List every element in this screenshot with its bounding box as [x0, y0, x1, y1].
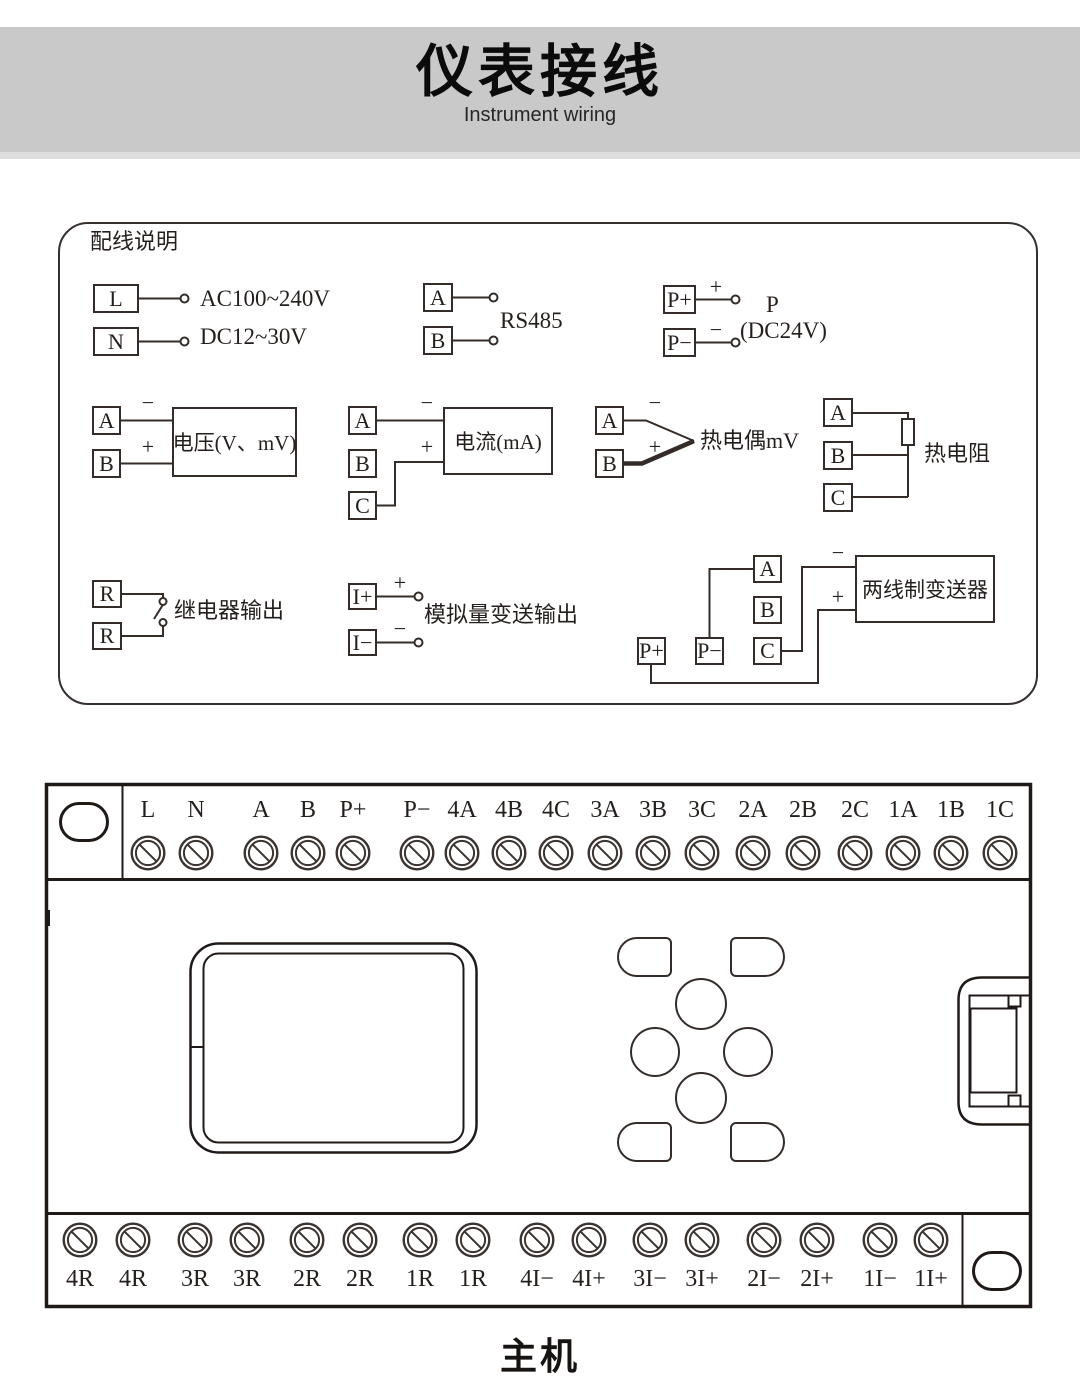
screw-terminal-2I+ [801, 1224, 834, 1257]
terminal-label-L: L [141, 797, 156, 824]
terminal-label-P+: P+ [340, 797, 367, 824]
device-button-down [675, 1072, 727, 1124]
screw-terminal-1C [984, 837, 1017, 870]
screw-terminal-2C [839, 837, 872, 870]
screw-terminal-2I− [748, 1224, 781, 1257]
terminal-label-2C: 2C [841, 797, 869, 824]
terminal-box-B-thermocouple: B [595, 449, 624, 478]
terminal-box-B-current: B [348, 449, 377, 478]
terminal-label-4C: 4C [542, 797, 570, 824]
screw-terminal-4R [64, 1224, 97, 1257]
terminal-box-C-current: C [348, 491, 377, 520]
terminal-box-P-plus-transmitter: P+ [637, 637, 666, 665]
screw-terminal-P− [401, 837, 434, 870]
rs485-label: RS485 [500, 308, 563, 333]
screw-terminal-3B [637, 837, 670, 870]
plus-sign: + [421, 436, 433, 458]
device-button-top-left [617, 937, 672, 977]
terminal-label-3R: 3R [233, 1266, 261, 1293]
terminal-box-R2: R [92, 622, 122, 650]
screw-terminal-N [180, 837, 213, 870]
terminal-label-4R: 4R [66, 1266, 94, 1293]
screw-terminal-2R [344, 1224, 377, 1257]
screw-terminal-1R [457, 1224, 490, 1257]
current-input-box: 电流(mA) [443, 407, 553, 475]
screw-terminal-B [292, 837, 325, 870]
screw-terminal-1B [935, 837, 968, 870]
screw-terminal-1I− [864, 1224, 897, 1257]
minus-sign: − [649, 392, 661, 414]
screw-terminal-3I+ [686, 1224, 719, 1257]
terminal-box-B-voltage: B [92, 449, 121, 478]
terminal-label-1A: 1A [888, 797, 917, 824]
terminal-box-I-minus: I− [348, 629, 377, 656]
terminal-box-L: L [93, 284, 139, 313]
case-notch [45, 910, 50, 926]
relay-label: 继电器输出 [174, 599, 284, 623]
screw-terminal-4I− [521, 1224, 554, 1257]
thermocouple-label: 热电偶mV [700, 429, 799, 453]
screw-terminal-3C [686, 837, 719, 870]
main-unit-caption: 主机 [0, 1326, 1080, 1380]
display-window [190, 944, 477, 1153]
transmitter-box: 两线制变送器 [855, 555, 995, 623]
power-supply-line2: DC12~30V [200, 324, 307, 349]
page: 仪表接线 Instrument wiring [0, 0, 1080, 1395]
terminal-label-4A: 4A [447, 797, 476, 824]
terminal-label-3I−: 3I− [633, 1266, 667, 1293]
minus-sign: − [394, 618, 406, 640]
screw-terminal-2R [291, 1224, 324, 1257]
terminal-label-1I+: 1I+ [914, 1266, 948, 1293]
terminal-box-B-rs485: B [423, 326, 453, 355]
terminal-label-4I+: 4I+ [572, 1266, 606, 1293]
terminal-box-A-rs485: A [423, 283, 453, 312]
terminal-box-P-plus: P+ [663, 285, 696, 314]
screw-terminal-1A [887, 837, 920, 870]
terminal-box-A-rtd: A [823, 398, 853, 427]
screw-terminal-A [245, 837, 278, 870]
plus-sign: + [142, 436, 154, 458]
terminal-label-1B: 1B [937, 797, 965, 824]
wiring-panel-title: 配线说明 [90, 230, 178, 254]
terminal-label-1C: 1C [986, 797, 1014, 824]
screw-terminals [64, 837, 1017, 1257]
device-button-right [723, 1027, 773, 1077]
terminal-label-2A: 2A [738, 797, 767, 824]
plus-sign: + [394, 572, 406, 594]
screw-terminal-3I− [634, 1224, 667, 1257]
screw-terminal-3R [179, 1224, 212, 1257]
terminal-label-3R: 3R [181, 1266, 209, 1293]
terminal-label-2I−: 2I− [747, 1266, 781, 1293]
screw-terminal-2B [787, 837, 820, 870]
terminal-label-A: A [252, 797, 269, 824]
terminal-label-1R: 1R [406, 1266, 434, 1293]
terminal-label-4B: 4B [495, 797, 523, 824]
terminal-label-B: B [300, 797, 316, 824]
power-supply-line1: AC100~240V [200, 286, 330, 311]
screw-terminal-3R [231, 1224, 264, 1257]
terminal-label-2R: 2R [293, 1266, 321, 1293]
device-button-left [630, 1027, 680, 1077]
terminal-label-3B: 3B [639, 797, 667, 824]
device-button-bottom-right [730, 1122, 785, 1162]
screw-terminal-L [132, 837, 165, 870]
terminal-label-N: N [187, 797, 204, 824]
side-connector [959, 978, 1032, 1125]
terminal-box-A-voltage: A [92, 406, 121, 435]
device-button-bottom-left [617, 1122, 672, 1162]
device-button-up [675, 978, 727, 1030]
terminal-box-C-rtd: C [823, 483, 853, 512]
terminal-box-P-minus: P− [663, 328, 696, 357]
terminal-label-4I−: 4I− [520, 1266, 554, 1293]
plus-sign: + [832, 586, 844, 608]
power-24v-label1: P [766, 292, 779, 317]
screw-terminal-3A [589, 837, 622, 870]
plus-sign: + [649, 436, 661, 458]
terminal-box-C-transmitter: C [753, 637, 782, 665]
plus-sign: + [710, 276, 722, 298]
minus-sign: − [421, 392, 433, 414]
terminal-label-2I+: 2I+ [800, 1266, 834, 1293]
terminal-box-I-plus: I+ [348, 583, 377, 610]
terminal-label-3C: 3C [688, 797, 716, 824]
screw-terminal-4R [117, 1224, 150, 1257]
terminal-box-A-transmitter: A [753, 555, 782, 583]
terminal-label-2R: 2R [346, 1266, 374, 1293]
screw-terminal-4I+ [573, 1224, 606, 1257]
screw-terminal-1R [404, 1224, 437, 1257]
mounting-slot-top-left [61, 804, 108, 841]
device-button-top-right [730, 937, 785, 977]
mounting-slot-bottom-right [974, 1253, 1021, 1290]
screw-terminal-4B [493, 837, 526, 870]
minus-sign: − [710, 319, 722, 341]
screw-terminal-4A [446, 837, 479, 870]
terminal-label-2B: 2B [789, 797, 817, 824]
terminal-label-1R: 1R [459, 1266, 487, 1293]
terminal-box-R1: R [92, 580, 122, 608]
terminal-label-1I−: 1I− [863, 1266, 897, 1293]
power-24v-label2: (DC24V) [740, 318, 827, 343]
terminal-label-4R: 4R [119, 1266, 147, 1293]
voltage-input-box: 电压(V、mV) [172, 407, 297, 477]
terminal-box-A-current: A [348, 406, 377, 435]
terminal-label-3I+: 3I+ [685, 1266, 719, 1293]
analog-out-label: 模拟量变送输出 [424, 603, 578, 627]
screw-terminal-1I+ [915, 1224, 948, 1257]
terminal-box-A-thermocouple: A [595, 406, 624, 435]
rtd-label: 热电阻 [924, 442, 990, 466]
terminal-box-P-minus-transmitter: P− [695, 637, 724, 665]
screw-terminal-2A [737, 837, 770, 870]
terminal-box-N: N [93, 327, 139, 356]
minus-sign: − [142, 392, 154, 414]
screw-terminal-4C [540, 837, 573, 870]
terminal-label-P−: P− [404, 797, 431, 824]
screw-terminal-P+ [337, 837, 370, 870]
terminal-label-3A: 3A [590, 797, 619, 824]
terminal-box-B-transmitter: B [753, 596, 782, 624]
terminal-box-B-rtd: B [823, 441, 853, 470]
minus-sign: − [832, 542, 844, 564]
